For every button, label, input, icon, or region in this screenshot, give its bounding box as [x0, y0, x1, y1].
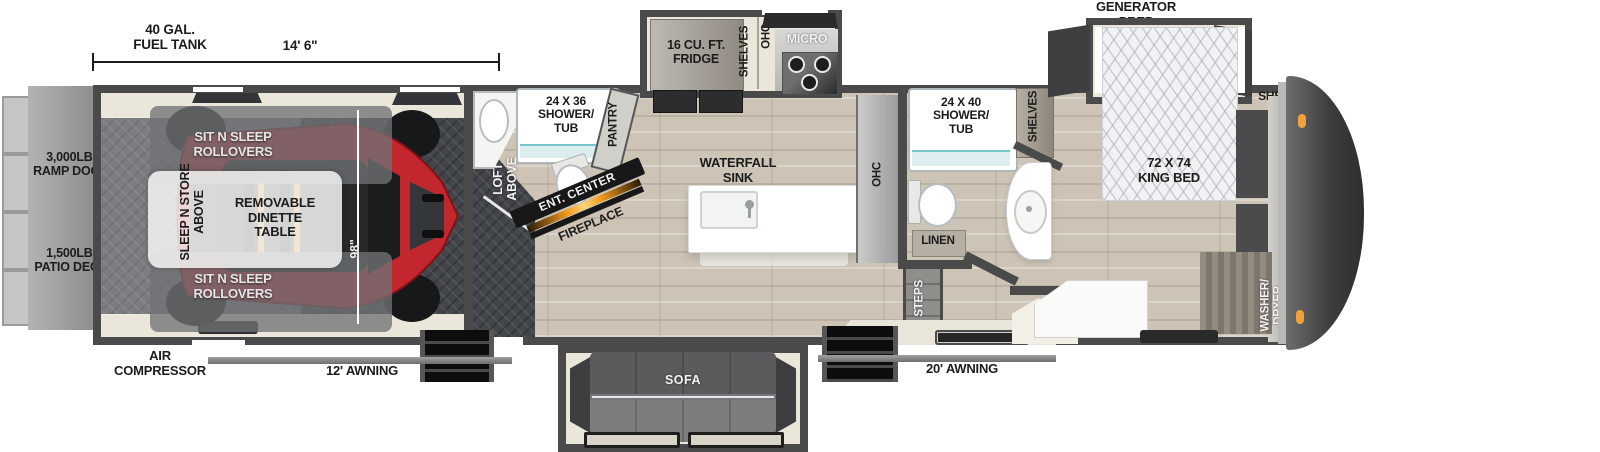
garage-length-dim-line — [93, 61, 500, 63]
sofa-slide-mat-2 — [688, 432, 784, 448]
half-bath-shower-label: 24 X 36 SHOWER/ TUB — [520, 95, 612, 135]
vanity-faucet-icon — [1026, 206, 1032, 212]
half-bath-sink — [479, 99, 509, 143]
bath-shelves-label: SHELVES — [1028, 86, 1041, 146]
garage-door-jamb-b — [523, 337, 528, 345]
sofa-slide-mat-1 — [584, 432, 680, 448]
kitchen-shelves-label: SHELVES — [739, 22, 752, 80]
marker-light-top — [1298, 114, 1306, 128]
top-wall-window-1 — [193, 87, 243, 92]
awning-garage-label: 12' AWNING — [302, 364, 422, 379]
main-bath-shower-label: 24 X 40 SHOWER/ TUB — [912, 96, 1010, 136]
bedroom-mat — [1140, 330, 1218, 343]
range-hood — [762, 13, 838, 28]
dim-tick-left — [92, 53, 94, 71]
sofa-label: SOFA — [628, 373, 738, 387]
garage-partition-wall — [464, 93, 473, 337]
bedroom-wardrobe-left — [1048, 25, 1090, 98]
bedroom-cabinet-upper — [1236, 110, 1268, 198]
linen-label: LINEN — [912, 235, 964, 248]
bath-bottom-wall — [898, 260, 972, 269]
entry-steps[interactable] — [822, 326, 898, 382]
garage-patio-steps[interactable] — [420, 330, 494, 382]
waterfall-sink-label: WATERFALL SINK — [683, 156, 793, 185]
sofa-arm-left — [570, 356, 592, 434]
bottom-wall-window-1 — [192, 340, 245, 345]
king-bed-label: 72 X 74 KING BED — [1108, 156, 1230, 185]
sofa-seam — [592, 396, 774, 398]
awning-main-label: 20' AWNING — [902, 362, 1022, 377]
bed-side-strip-right — [1238, 27, 1245, 93]
top-wall-window-2 — [400, 87, 460, 92]
garage-length-label: 14' 6" — [250, 38, 350, 53]
burner-icon-3 — [801, 74, 818, 91]
fridge-label: 16 CU. FT. FRIDGE — [650, 38, 742, 66]
ramp-door — [28, 86, 96, 330]
side-ohc-label: OHC — [872, 145, 885, 203]
sofa-arm-right — [774, 356, 796, 434]
kitchen-divider — [757, 17, 759, 89]
pantry-label: PANTRY — [608, 92, 621, 156]
vanity-sink — [1014, 190, 1047, 234]
main-bath-tub-edge — [912, 150, 1010, 166]
fridge-drawer-1 — [653, 90, 697, 113]
steps-label: STEPS — [914, 268, 927, 328]
bath-left-wall — [898, 93, 907, 268]
air-compressor-label: AIR COMPRESSOR — [100, 349, 220, 378]
fridge-drawer-2 — [699, 90, 743, 113]
faucet-spout — [748, 206, 751, 218]
bed-side-strip-left — [1095, 27, 1102, 93]
main-bath-toilet — [918, 183, 957, 227]
micro-label: MICRO — [778, 32, 836, 46]
burner-icon-1 — [788, 56, 805, 73]
floorplan: 40 GAL. FUEL TANK 14' 6" 3,000LB. RAMP D… — [0, 0, 1600, 452]
dim-tick-right — [498, 53, 500, 71]
fuel-tank-label: 40 GAL. FUEL TANK — [105, 22, 235, 52]
burner-icon-2 — [814, 56, 831, 73]
marker-light-bottom — [1296, 310, 1304, 324]
